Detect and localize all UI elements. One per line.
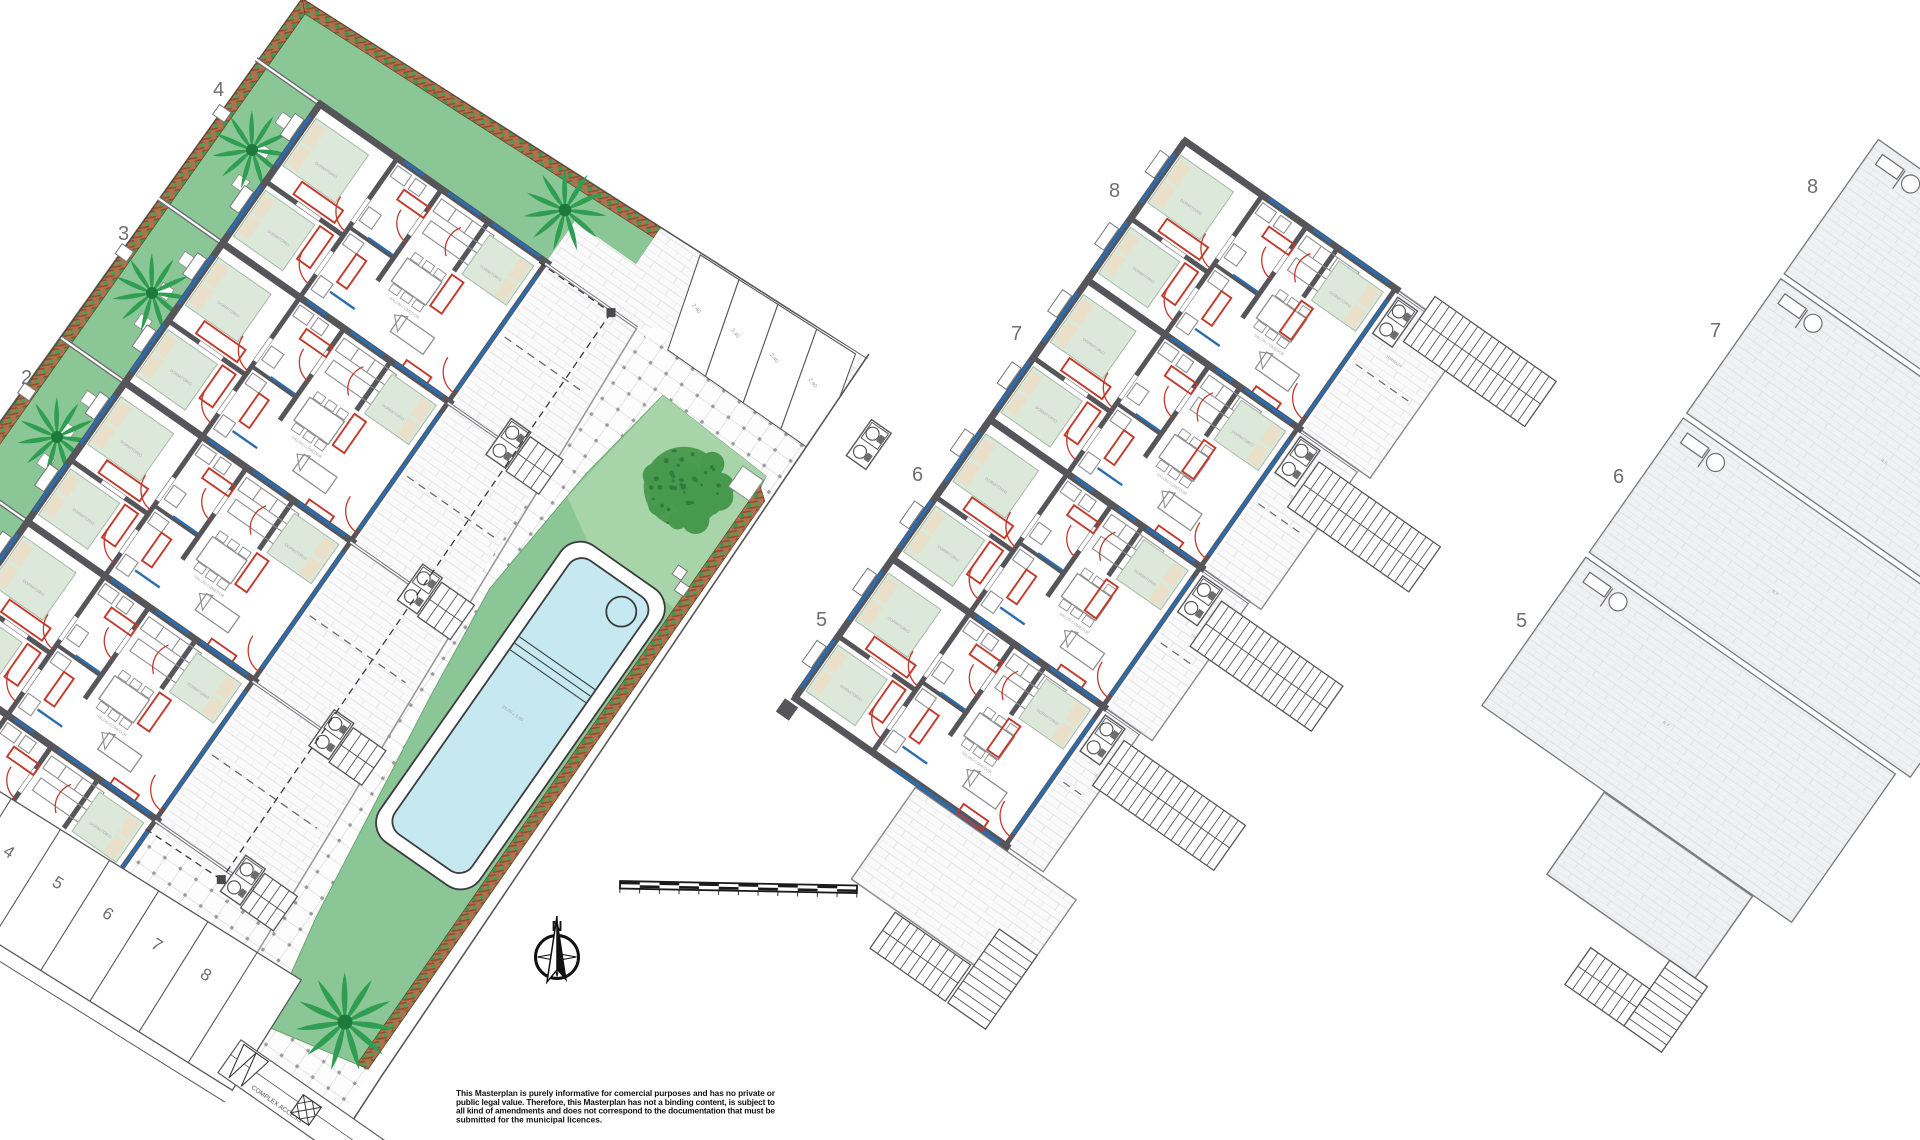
svg-text:8: 8 [1807,176,1818,198]
svg-text:8: 8 [1109,180,1120,202]
svg-text:7: 7 [1710,320,1721,342]
svg-text:6: 6 [912,464,923,486]
svg-text:5: 5 [1516,610,1527,632]
svg-text:7: 7 [1011,323,1022,345]
svg-text:4: 4 [213,79,224,101]
svg-text:3: 3 [118,223,129,245]
svg-text:submitted for the municipal li: submitted for the municipal licences. [456,1114,602,1124]
svg-text:6: 6 [1613,466,1624,488]
svg-text:2: 2 [21,367,32,389]
svg-text:5: 5 [816,609,827,631]
svg-text:N: N [552,918,563,935]
